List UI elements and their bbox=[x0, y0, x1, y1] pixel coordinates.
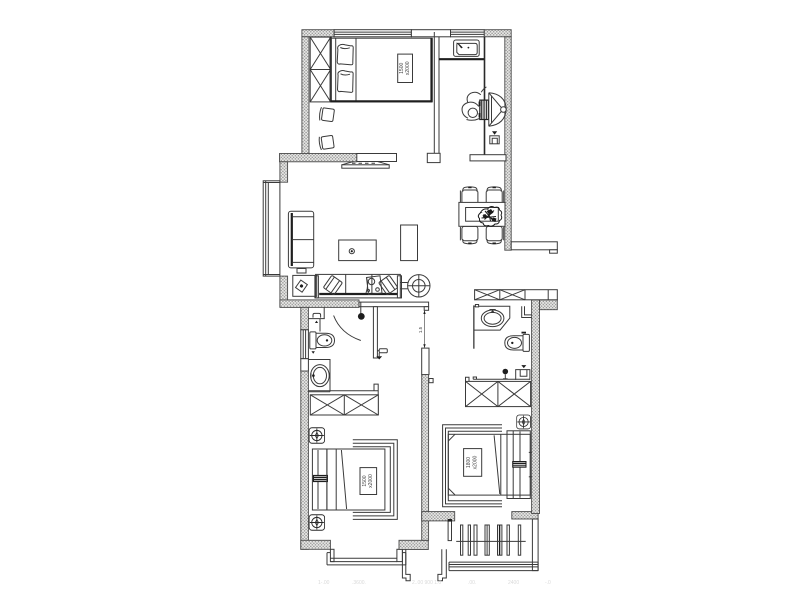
svg-text:x2000: x2000 bbox=[405, 61, 411, 75]
svg-text:1800: 1800 bbox=[466, 457, 472, 468]
svg-text:x2000: x2000 bbox=[368, 474, 374, 488]
svg-text:.3600.: .3600. bbox=[352, 580, 366, 586]
svg-text:-.0: -.0 bbox=[545, 580, 551, 586]
svg-text:x2000: x2000 bbox=[473, 455, 479, 469]
svg-text:1-.00: 1-.00 bbox=[318, 580, 330, 586]
svg-text:.00.: .00. bbox=[468, 580, 476, 586]
svg-text:2400: 2400 bbox=[508, 580, 519, 586]
svg-text:1.5: 1.5 bbox=[418, 326, 423, 333]
svg-text:2..00 900 1.0: 2..00 900 1.0 bbox=[412, 580, 441, 586]
